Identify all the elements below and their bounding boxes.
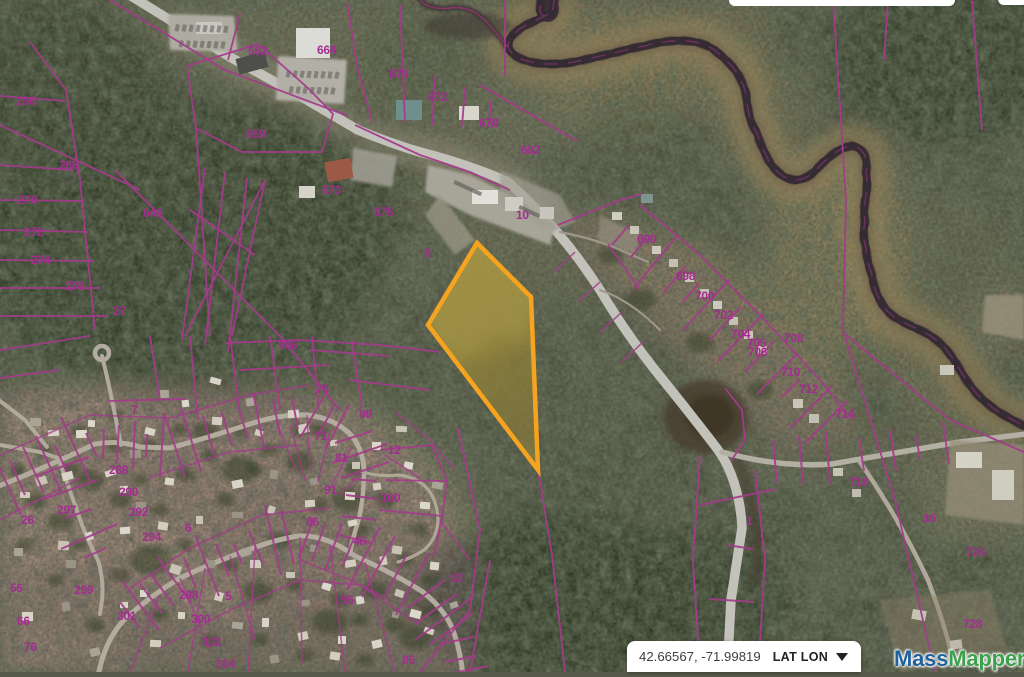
svg-text:302: 302 xyxy=(202,635,222,649)
svg-text:10: 10 xyxy=(516,208,529,222)
svg-text:274: 274 xyxy=(31,253,51,267)
svg-text:672: 672 xyxy=(428,90,448,104)
svg-text:294: 294 xyxy=(142,530,162,544)
svg-text:86: 86 xyxy=(306,515,319,529)
svg-text:26: 26 xyxy=(21,513,34,527)
svg-text:986: 986 xyxy=(278,338,298,352)
svg-text:705: 705 xyxy=(747,336,767,350)
svg-text:702: 702 xyxy=(714,308,734,322)
svg-text:66: 66 xyxy=(17,614,30,628)
svg-text:298: 298 xyxy=(179,588,199,602)
svg-text:673: 673 xyxy=(322,183,342,197)
svg-text:76: 76 xyxy=(24,640,37,654)
svg-text:85: 85 xyxy=(402,653,415,667)
svg-text:56: 56 xyxy=(10,581,23,595)
svg-text:678: 678 xyxy=(479,116,499,130)
svg-text:71: 71 xyxy=(314,429,327,443)
svg-text:6: 6 xyxy=(185,521,192,535)
svg-text:272: 272 xyxy=(24,225,44,239)
svg-text:649: 649 xyxy=(143,206,163,220)
svg-text:300: 300 xyxy=(191,612,211,626)
svg-text:5: 5 xyxy=(225,589,232,603)
svg-text:708: 708 xyxy=(784,331,804,345)
svg-text:700: 700 xyxy=(695,289,715,303)
svg-text:290: 290 xyxy=(119,485,139,499)
svg-text:266: 266 xyxy=(16,94,36,108)
svg-text:268: 268 xyxy=(59,158,79,172)
svg-text:698: 698 xyxy=(676,269,696,283)
svg-text:100: 100 xyxy=(381,491,401,505)
svg-text:7: 7 xyxy=(131,403,138,417)
svg-text:52: 52 xyxy=(450,571,463,585)
svg-text:664: 664 xyxy=(317,43,337,57)
svg-text:562: 562 xyxy=(248,44,268,58)
svg-text:297: 297 xyxy=(57,503,77,517)
svg-text:679: 679 xyxy=(389,67,409,81)
svg-text:270: 270 xyxy=(18,193,38,207)
svg-text:27: 27 xyxy=(113,304,126,318)
svg-text:46: 46 xyxy=(353,534,366,548)
svg-text:81: 81 xyxy=(335,451,348,465)
svg-text:70: 70 xyxy=(316,382,329,396)
svg-text:675: 675 xyxy=(374,205,394,219)
svg-text:714: 714 xyxy=(835,407,855,421)
svg-text:288: 288 xyxy=(109,463,129,477)
svg-text:292: 292 xyxy=(129,505,149,519)
svg-text:299: 299 xyxy=(74,583,94,597)
svg-text:728: 728 xyxy=(963,617,983,631)
svg-text:669: 669 xyxy=(246,127,266,141)
svg-text:1: 1 xyxy=(746,514,753,528)
svg-text:16: 16 xyxy=(923,511,936,525)
svg-text:724: 724 xyxy=(966,545,986,559)
svg-text:301: 301 xyxy=(117,609,137,623)
svg-text:710: 710 xyxy=(781,365,801,379)
svg-text:12: 12 xyxy=(388,443,401,457)
svg-text:718: 718 xyxy=(849,475,869,489)
svg-text:9: 9 xyxy=(424,246,431,260)
svg-text:276: 276 xyxy=(65,279,85,293)
svg-text:91: 91 xyxy=(324,483,337,497)
svg-text:55: 55 xyxy=(341,593,354,607)
svg-text:712: 712 xyxy=(799,382,819,396)
svg-text:304: 304 xyxy=(216,657,236,671)
svg-text:80: 80 xyxy=(359,407,372,421)
svg-text:690: 690 xyxy=(637,232,657,246)
svg-text:682: 682 xyxy=(521,143,541,157)
